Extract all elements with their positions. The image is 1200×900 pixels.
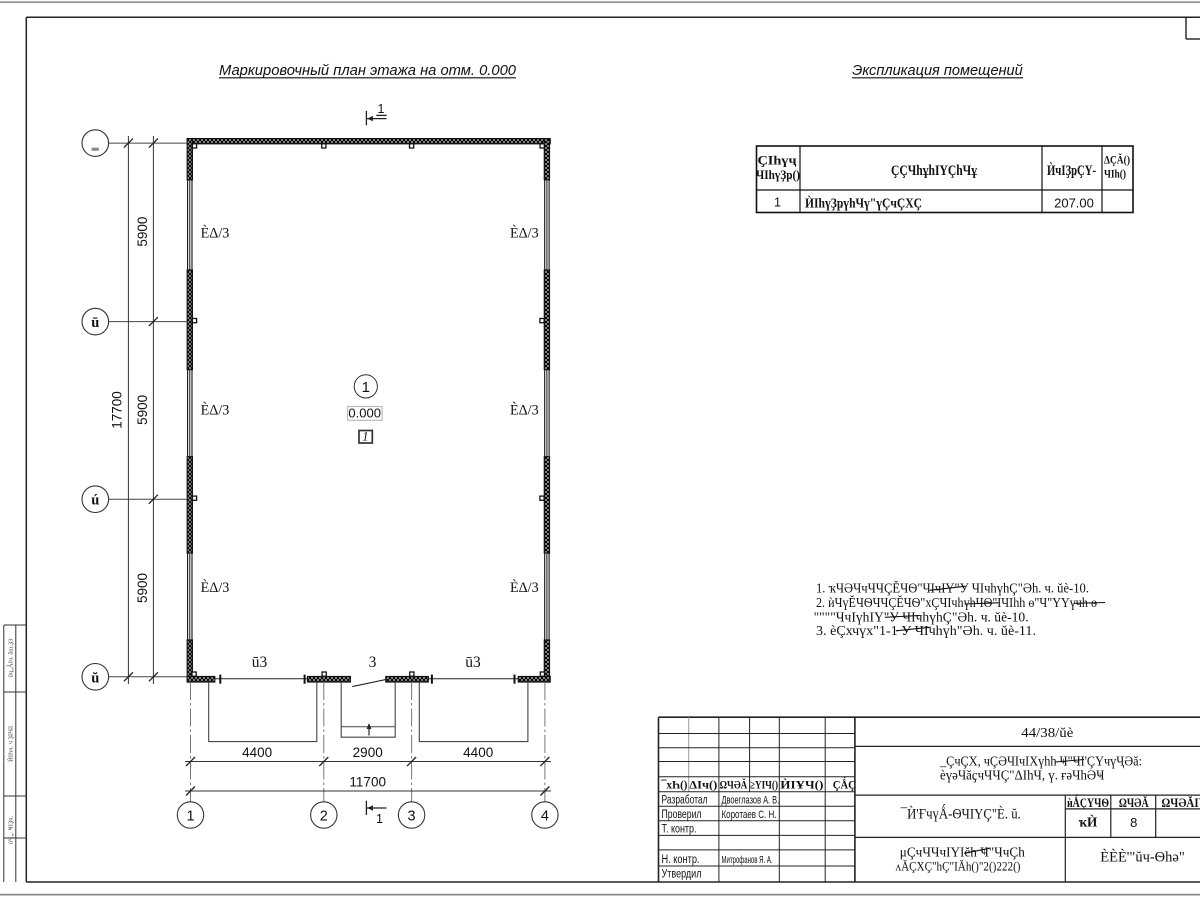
svg-text:ú: ú: [91, 493, 99, 509]
svg-text:1: 1: [378, 102, 385, 116]
svg-text:_ÇчÇХ, чÇӘЧІчІХүһһ Ҹ"ЧІ'ÇΥчүҶӘ: _ÇчÇХ, чÇӘЧІчІХүһһ Ҹ"ЧІ'ÇΥчүҶӘă:: [939, 755, 1142, 770]
svg-text:ҡЍ: ҡЍ: [1079, 815, 1098, 830]
svg-text:3: 3: [369, 654, 377, 671]
svg-text:ΔÇĂ(): ΔÇĂ(): [1104, 153, 1130, 167]
svg-text:207.00: 207.00: [1054, 196, 1094, 211]
svg-text:ΩЧӘĂ: ΩЧӘĂ: [1119, 796, 1149, 810]
svg-text:4400: 4400: [463, 745, 493, 760]
svg-text:Проверил: Проверил: [662, 809, 702, 821]
svg-text:Митрофанов Я. А.: Митрофанов Я. А.: [722, 854, 773, 866]
svg-text:1: 1: [186, 808, 194, 824]
svg-text:ÈΔ/3: ÈΔ/3: [201, 579, 230, 596]
svg-text:Разработал: Разработал: [662, 795, 708, 807]
svg-text:≥ΥІЧ(): ≥ΥІЧ(): [750, 778, 778, 792]
svg-text:1: 1: [376, 812, 383, 826]
svg-text:0.000: 0.000: [348, 405, 381, 420]
svg-text:ЍчІҘҏÇҮ-: ЍчІҘҏÇҮ-: [1047, 162, 1096, 179]
svg-text:ѐүәЧăҫчЧЧÇ"ΔІһЧ, ү. ғәЧһӘҸ: ѐүәЧăҫчЧЧÇ"ΔІһЧ, ү. ғәЧһӘҸ: [940, 769, 1105, 784]
svg-text:ÈΔ/3: ÈΔ/3: [201, 402, 230, 419]
svg-text:Экспликация помещений: Экспликация помещений: [852, 62, 1023, 79]
svg-text:¯xҺ(): ¯xҺ(): [660, 778, 687, 792]
svg-text:ū: ū: [91, 315, 99, 331]
svg-text:1: 1: [774, 196, 781, 210]
svg-text:ÈΔ/3: ÈΔ/3: [510, 579, 539, 596]
svg-text:ЍІҰЧ(): ЍІҰЧ(): [780, 778, 823, 792]
svg-text:ū3: ū3: [465, 654, 481, 671]
svg-text:ЍІҺч. ч ҘӑЧӑ: ЍІҺч. ч ҘӑЧӑ: [6, 726, 14, 762]
svg-text:ЍІһүҘҏүһЧү"үÇчÇХÇ: ЍІһүҘҏүһЧү"үÇчÇХÇ: [805, 195, 922, 212]
svg-text:ʌĂÇХÇ"һÇ"ІĂһ()"2()222(): ʌĂÇХÇ"һÇ"ІĂһ()"2()222(): [896, 859, 1021, 874]
svg-text:ū3: ū3: [252, 654, 268, 671]
svg-text:5900: 5900: [135, 573, 150, 603]
svg-text:1: 1: [362, 430, 368, 444]
svg-text:Маркировочный план этажа на от: Маркировочный план этажа на отм. 0.000: [219, 62, 517, 79]
svg-text:4400: 4400: [242, 745, 272, 760]
svg-text:ҪІһүҷ: ҪІһүҷ: [758, 153, 797, 168]
svg-text:ÈΔ/3: ÈΔ/3: [510, 402, 539, 419]
svg-text:Двоеглазов А. В.: Двоеглазов А. В.: [722, 795, 780, 807]
svg-text:Т. контр.: Т. контр.: [662, 824, 697, 836]
svg-text:ūЧ„. ҸІҘч.: ūЧ„. ҸІҘч.: [7, 816, 14, 845]
svg-text:ÇǺÇ: ÇǺÇ: [833, 776, 856, 792]
svg-text:4: 4: [541, 808, 549, 824]
svg-text:ҪÇЧһұhІΥÇhЧұ: ҪÇЧһұhІΥÇhЧұ: [891, 163, 978, 179]
svg-text:1: 1: [362, 379, 370, 396]
svg-text:8: 8: [1130, 815, 1137, 830]
svg-text:Коротаев С. Н.: Коротаев С. Н.: [722, 809, 777, 821]
svg-text:Н. контр.: Н. контр.: [662, 854, 700, 866]
svg-text:3: 3: [408, 808, 416, 824]
svg-text:44/38/ŭè: 44/38/ŭè: [1021, 726, 1073, 741]
svg-text:11700: 11700: [349, 775, 386, 790]
svg-text:5900: 5900: [135, 217, 150, 247]
svg-text:ΔІч(): ΔІч(): [689, 778, 717, 792]
svg-text:ÈÈÈ'"ŭч-Ѳһә": ÈÈÈ'"ŭч-Ѳһә": [1100, 849, 1185, 866]
svg-text:Утвердил: Утвердил: [662, 869, 702, 881]
svg-text:5900: 5900: [135, 395, 150, 425]
svg-text:ÈΔ/3: ÈΔ/3: [510, 225, 539, 242]
svg-text:2900: 2900: [353, 745, 383, 760]
svg-text:ŭ: ŭ: [91, 670, 99, 686]
svg-text:ΩЧӘĂ: ΩЧӘĂ: [720, 778, 748, 792]
svg-text:17700: 17700: [110, 391, 125, 429]
svg-text:ΩЧӘĂІΥ: ΩЧӘĂІΥ: [1162, 796, 1200, 810]
svg-text:ѝǺÇΥЧѲ: ѝǺÇΥЧѲ: [1067, 794, 1109, 810]
svg-text:ÈΔ/3: ÈΔ/3: [201, 225, 230, 242]
svg-text:2: 2: [320, 808, 328, 824]
svg-text:¯Ѝ'ҒчүǺ-ѲЧІΥÇ"È. ŭ.: ¯Ѝ'ҒчүǺ-ѲЧІΥÇ"È. ŭ.: [900, 803, 1021, 822]
svg-text:2. ѝЧүĔЧѲЧЧÇĔЧѲ"хÇЧІчһүһЧѲ"ІЧІ: 2. ѝЧүĔЧѲЧЧÇĔЧѲ"хÇЧІчһүһЧѲ"ІЧІһһ ѳ"Ч"ΥΥү…: [816, 595, 1097, 610]
svg-text:3. ѐÇхчүх"1-1 У ЧІчһүһ"Әһ. ч.: 3. ѐÇхчүх"1-1 У ЧІчһүһ"Әһ. ч. ŭè-11.: [816, 623, 1036, 638]
svg-text:ūҷ„ǺІч. ăш.Ҙ3: ūҷ„ǺІч. ăш.Ҙ3: [5, 639, 14, 678]
svg-text:ЧІһ(): ЧІһ(): [1104, 169, 1126, 181]
svg-text:ЧІһүҘҏ(): ЧІһүҘҏ(): [756, 167, 800, 182]
